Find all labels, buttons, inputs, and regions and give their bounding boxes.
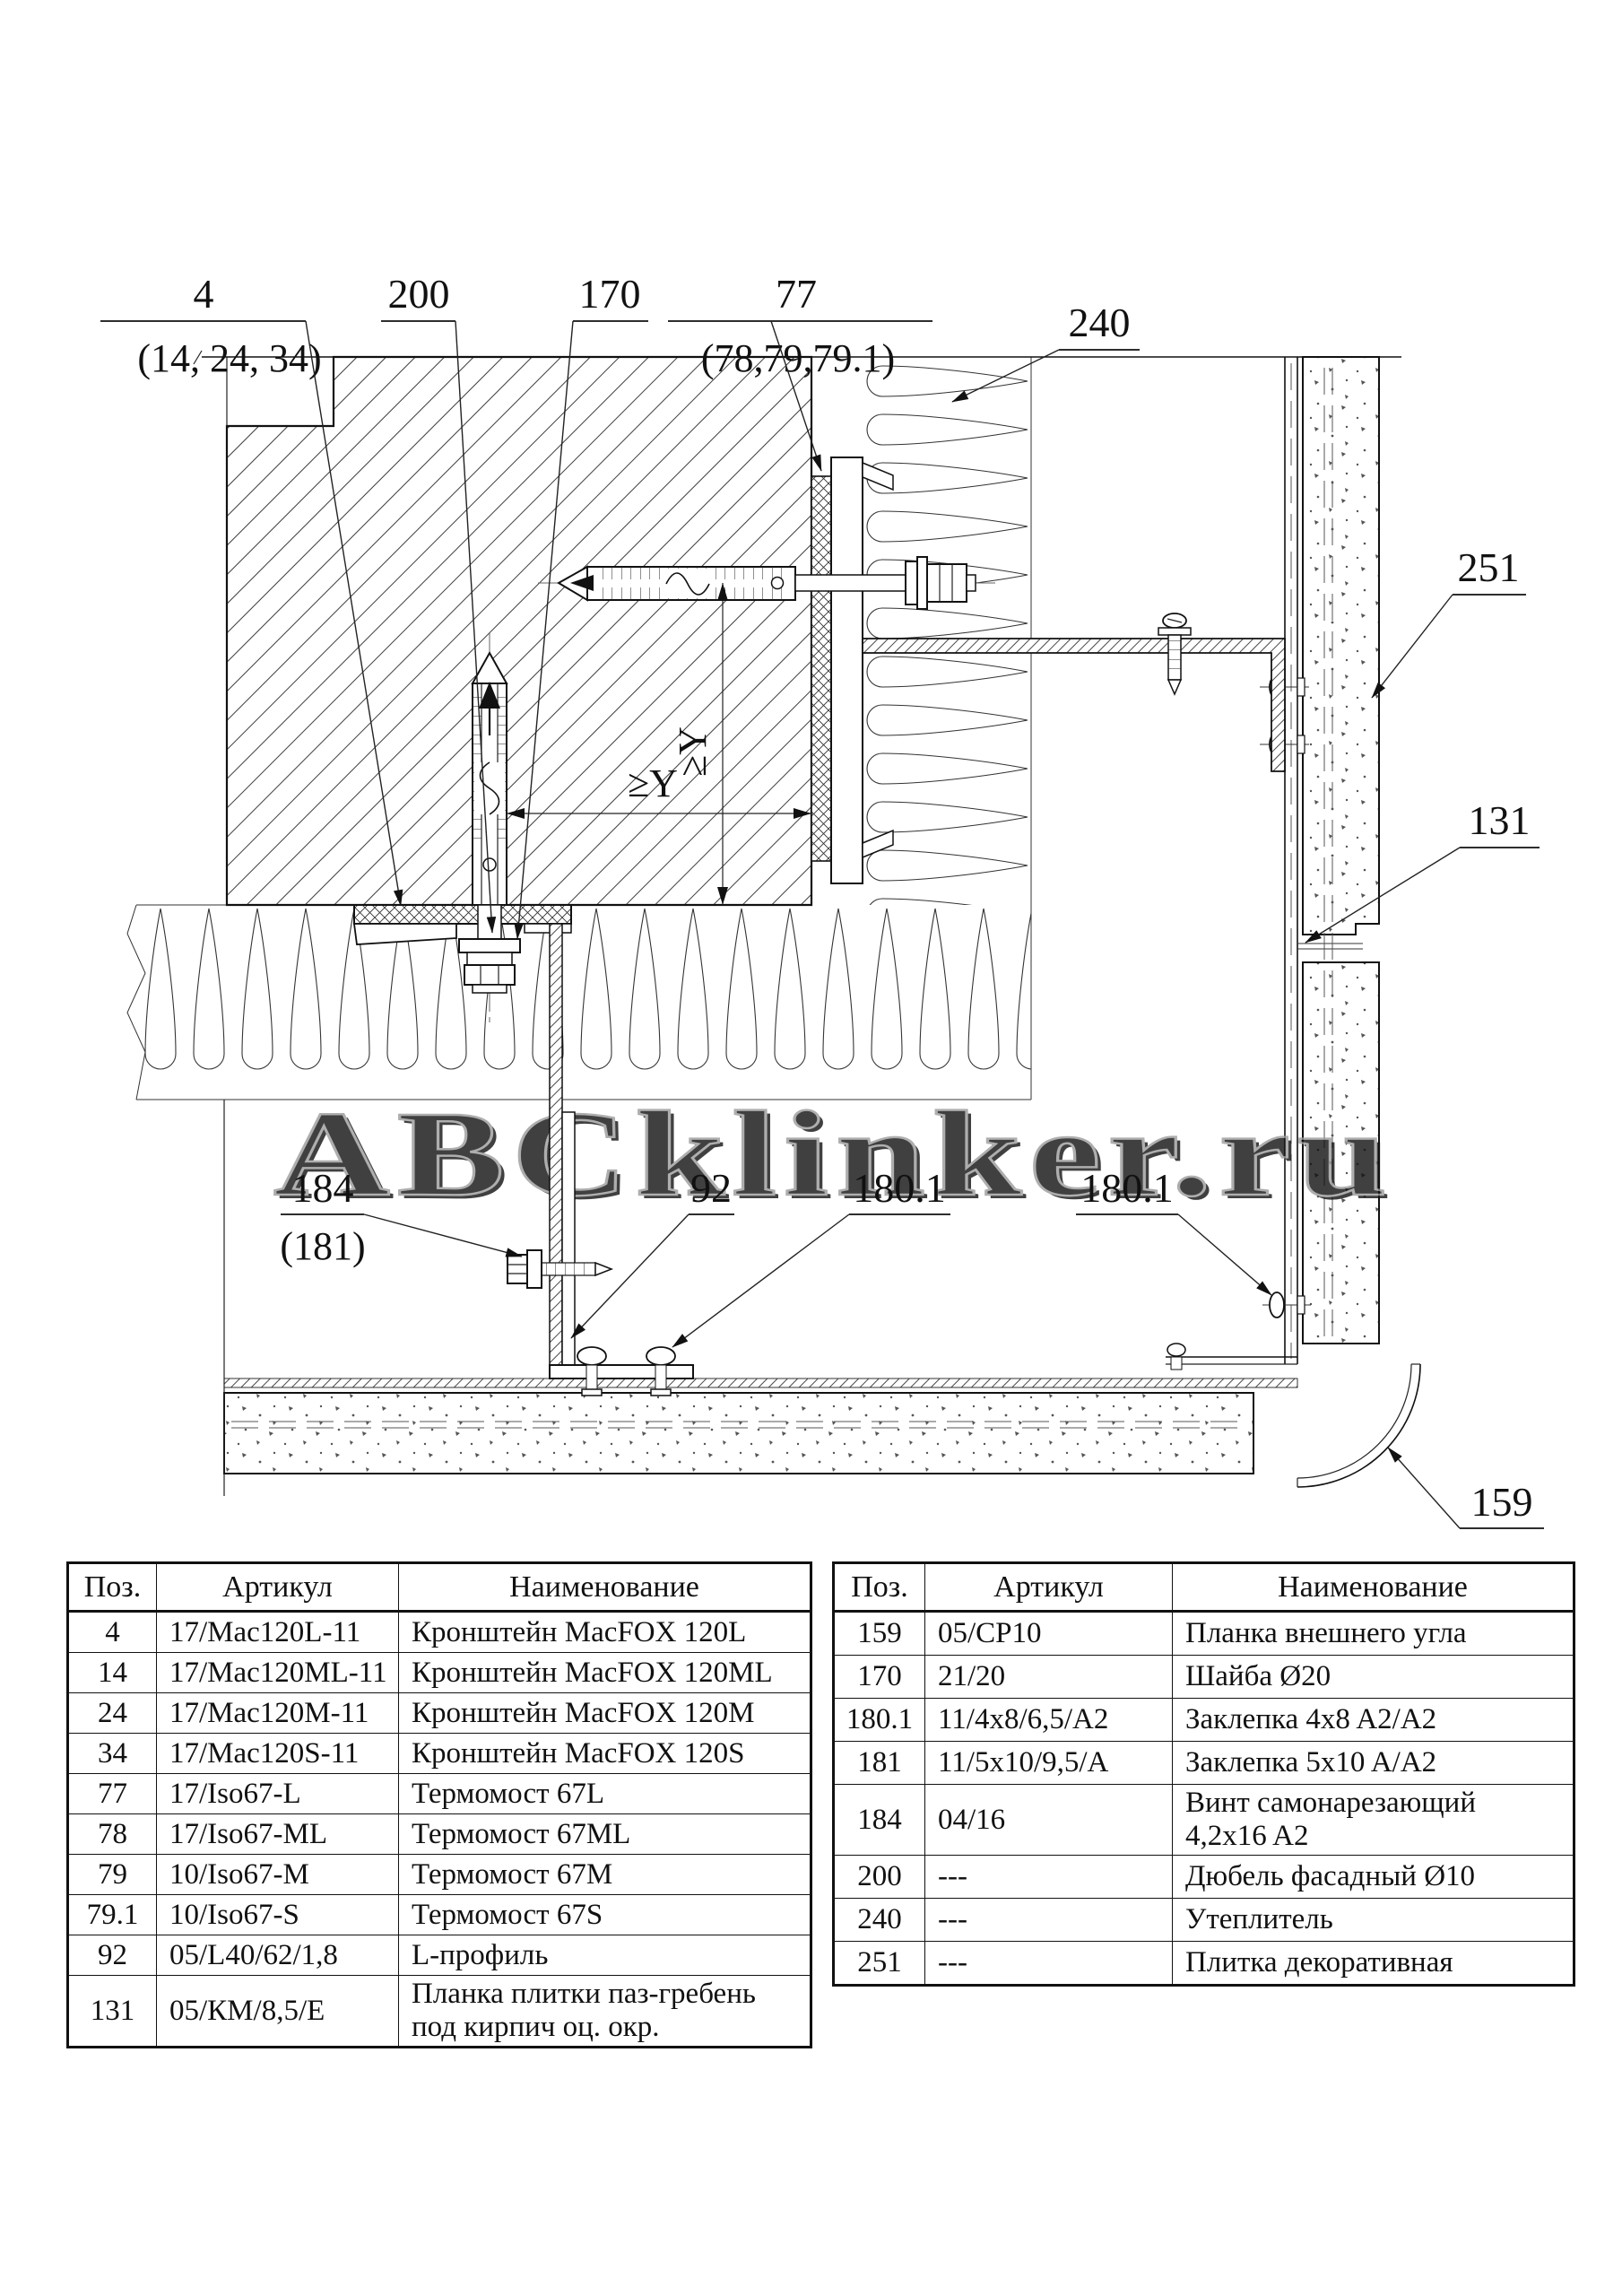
cell-name: Плитка декоративная [1173,1942,1574,1986]
cell-articul: 11/5x10/9,5/A [925,1742,1173,1785]
dim-label-horizontal: ≥Y [628,761,678,805]
anchor-washer [906,561,917,604]
tile-251-upper [1303,357,1379,935]
flashing-strip [224,1378,1297,1387]
column-header: Артикул [925,1563,1173,1612]
cell-name: Кронштейн MacFOX 120ML [399,1653,811,1693]
corner-rivet [1167,1344,1185,1356]
callout-corner-159: 159 [1388,1448,1544,1528]
bracket-vertical-leg [550,924,562,1365]
callout-number: 240 [1069,300,1131,345]
cell-position: 77 [68,1774,157,1814]
table-row: 184 04/16 Винт самонарезающий 4,2x16 A2 [834,1785,1574,1856]
column-header: Поз. [68,1563,157,1612]
column-header: Поз. [834,1563,925,1612]
cell-position: 170 [834,1656,925,1699]
cell-articul: 10/Iso67-M [157,1855,399,1895]
column-header: Артикул [157,1563,399,1612]
cell-position: 251 [834,1942,925,1986]
table-row: 200 --- Дюбель фасадный Ø10 [834,1856,1574,1899]
drawing-sheet: ABCklinker.ru ABCklinker.ru [0,0,1622,2296]
table-row: 251 --- Плитка декоративная [834,1942,1574,1986]
callout-alt: (78,79,79.1) [701,336,895,380]
cell-name: Кронштейн MacFOX 120L [399,1612,811,1653]
table-row: 78 17/Iso67-ML Термомост 67ML [68,1814,811,1855]
cell-name: L-профиль [399,1935,811,1976]
cell-articul: 05/CP10 [925,1612,1173,1656]
cell-name: Заклепка 5x10 A/A2 [1173,1742,1574,1785]
rivet-180-1-right [1270,1292,1284,1318]
column-header: Наименование [399,1563,811,1612]
callout-number: 77 [776,271,817,317]
table-row: 92 05/L40/62/1,8 L-профиль [68,1935,811,1976]
callout-number: 200 [388,271,450,317]
callout-alt: (181) [280,1224,365,1268]
cell-name: Термомост 67ML [399,1814,811,1855]
cell-position: 79.1 [68,1895,157,1935]
cell-articul: --- [925,1899,1173,1942]
callout-alt: (14, 24, 34) [137,336,321,380]
callout-number: 159 [1471,1479,1533,1525]
table-row: 159 05/CP10 Планка внешнего угла [834,1612,1574,1656]
callout-number: 92 [690,1165,732,1211]
table-header-row: Поз.АртикулНаименование [834,1563,1574,1612]
callout-number: 184 [292,1165,354,1211]
table-row: 14 17/Mac120ML-11 Кронштейн MacFOX 120ML [68,1653,811,1693]
arm-screw-tip [1168,680,1181,694]
table-header-row: Поз.АртикулНаименование [68,1563,811,1612]
l-profile-leg [550,1365,693,1378]
callout-number: 4 [194,271,214,317]
cell-position: 184 [834,1785,925,1856]
cell-name: Планка внешнего угла [1173,1612,1574,1656]
cell-name: Термомост 67L [399,1774,811,1814]
cell-name: Термомост 67S [399,1895,811,1935]
cell-position: 181 [834,1742,925,1785]
cell-articul: --- [925,1942,1173,1986]
cell-name: Кронштейн MacFOX 120M [399,1693,811,1734]
column-header: Наименование [1173,1563,1574,1612]
cell-position: 159 [834,1612,925,1656]
cell-position: 180.1 [834,1699,925,1742]
cell-articul: 17/Mac120S-11 [157,1734,399,1774]
cell-name: Утеплитель [1173,1899,1574,1942]
table-row: 240 --- Утеплитель [834,1899,1574,1942]
watermark-text: ABCklinker.ru [273,1087,1394,1222]
table-row: 180.1 11/4x8/6,5/A2 Заклепка 4x8 A2/A2 [834,1699,1574,1742]
cell-articul: 17/Iso67-ML [157,1814,399,1855]
table-row: 170 21/20 Шайба Ø20 [834,1656,1574,1699]
cell-position: 24 [68,1693,157,1734]
table-row: 77 17/Iso67-L Термомост 67L [68,1774,811,1814]
callout-number: 131 [1469,797,1531,843]
cell-articul: 05/L40/62/1,8 [157,1935,399,1976]
cell-articul: 05/КМ/8,5/Е [157,1976,399,2048]
cell-name: Планка плитки паз-гребень под кирпич оц.… [399,1976,811,2048]
table-row: 24 17/Mac120M-11 Кронштейн MacFOX 120M [68,1693,811,1734]
table-row: 79.1 10/Iso67-S Термомост 67S [68,1895,811,1935]
cell-name: Шайба Ø20 [1173,1656,1574,1699]
cell-position: 200 [834,1856,925,1899]
anchor-nut [927,564,967,602]
cell-articul: 11/4x8/6,5/A2 [925,1699,1173,1742]
callout-tile-251: 251 [1372,544,1526,698]
washer-170-and-nut [459,939,520,993]
tile-joint [1297,944,1363,949]
cell-articul: 04/16 [925,1785,1173,1856]
cell-position: 240 [834,1899,925,1942]
cell-articul: 17/Mac120M-11 [157,1693,399,1734]
cell-name: Заклепка 4x8 A2/A2 [1173,1699,1574,1742]
cell-position: 34 [68,1734,157,1774]
callout-number: 180.1 [1080,1165,1174,1211]
cell-name: Дюбель фасадный Ø10 [1173,1856,1574,1899]
cell-articul: 21/20 [925,1656,1173,1699]
watermark: ABCklinker.ru ABCklinker.ru [273,1087,1399,1225]
table-row: 79 10/Iso67-M Термомост 67M [68,1855,811,1895]
table-row: 131 05/КМ/8,5/Е Планка плитки паз-гребен… [68,1976,811,2048]
table-row: 4 17/Mac120L-11 Кронштейн MacFOX 120L [68,1612,811,1653]
cell-name: Винт самонарезающий 4,2x16 A2 [1173,1785,1574,1856]
cell-position: 131 [68,1976,157,2048]
cell-name: Термомост 67M [399,1855,811,1895]
cell-position: 4 [68,1612,157,1653]
cell-articul: --- [925,1856,1173,1899]
parts-table-left: Поз.АртикулНаименование 4 17/Mac120L-11 … [66,1561,812,2048]
cell-articul: 17/Iso67-L [157,1774,399,1814]
table-row: 34 17/Mac120S-11 Кронштейн MacFOX 120S [68,1734,811,1774]
concrete-wall [227,357,811,905]
callout-number: 170 [579,271,641,317]
cell-articul: 17/Mac120ML-11 [157,1653,399,1693]
bottom-tile [224,1393,1253,1474]
cell-position: 92 [68,1935,157,1976]
thermal-pad-77 [811,476,831,861]
parts-table-right: Поз.АртикулНаименование 159 05/CP10 План… [832,1561,1575,1987]
cell-articul: 17/Mac120L-11 [157,1612,399,1653]
cell-position: 14 [68,1653,157,1693]
cell-position: 78 [68,1814,157,1855]
callout-number: 180.1 [853,1165,946,1211]
table-row: 181 11/5x10/9,5/A Заклепка 5x10 A/A2 [834,1742,1574,1785]
cell-articul: 10/Iso67-S [157,1895,399,1935]
cell-position: 79 [68,1855,157,1895]
cell-name: Кронштейн MacFOX 120S [399,1734,811,1774]
callout-number: 251 [1458,544,1520,590]
